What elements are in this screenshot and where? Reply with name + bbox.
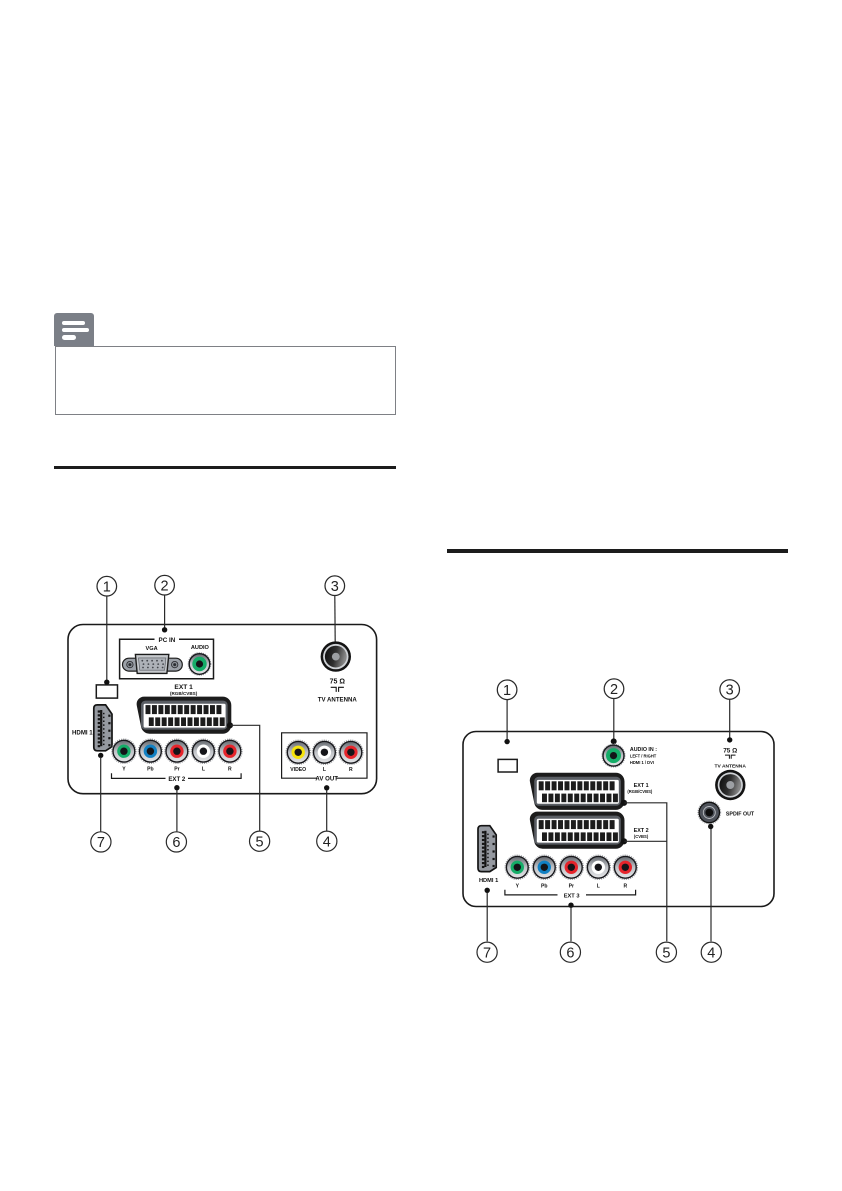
svg-text:2: 2 [610,682,618,698]
svg-text:L: L [202,767,205,773]
svg-text:TV ANTENNA: TV ANTENNA [715,763,747,769]
svg-text:5: 5 [256,834,264,850]
svg-text:3: 3 [726,683,734,699]
svg-text:75 Ω: 75 Ω [330,679,346,686]
svg-text:7: 7 [483,945,491,961]
svg-text:6: 6 [172,835,180,851]
svg-text:5: 5 [662,945,670,961]
svg-text:VIDEO: VIDEO [290,767,306,773]
svg-text:4: 4 [707,945,715,961]
svg-text:(CVBS): (CVBS) [634,834,649,839]
svg-text:AUDIO IN :: AUDIO IN : [630,747,657,753]
svg-text:L: L [323,767,326,773]
svg-text:HDMI 1: HDMI 1 [479,878,498,884]
svg-text:L: L [597,883,600,889]
svg-text:R: R [228,767,232,773]
svg-text:Y: Y [516,883,520,889]
svg-text:SPDIF OUT: SPDIF OUT [726,811,755,817]
svg-text:(RGB/CVBS): (RGB/CVBS) [627,789,652,794]
svg-text:LEFT / RIGHT: LEFT / RIGHT [630,754,657,759]
svg-text:R: R [349,767,353,773]
svg-text:HDMI 1 / DVI: HDMI 1 / DVI [630,760,654,765]
svg-text:(RGB/CVBS): (RGB/CVBS) [170,691,198,696]
svg-text:4: 4 [323,834,331,850]
svg-text:1: 1 [103,579,111,595]
svg-text:TV ANTENNA: TV ANTENNA [318,696,358,703]
svg-text:R: R [623,883,627,889]
svg-text:EXT 1: EXT 1 [634,783,649,789]
svg-text:HDMI 1: HDMI 1 [72,730,93,737]
svg-text:Pr: Pr [569,883,574,889]
svg-text:Pb: Pb [541,883,548,889]
svg-text:Pr: Pr [174,767,179,773]
svg-text:2: 2 [161,578,169,594]
svg-text:Y: Y [122,767,126,773]
svg-text:1: 1 [503,683,511,699]
svg-text:VGA: VGA [146,646,158,652]
svg-text:EXT 2: EXT 2 [634,828,649,834]
svg-text:Pb: Pb [147,767,154,773]
svg-text:7: 7 [97,835,105,851]
svg-text:PC IN: PC IN [159,637,176,644]
svg-text:AV OUT: AV OUT [315,776,338,783]
svg-text:75 Ω: 75 Ω [723,748,737,755]
svg-text:AUDIO: AUDIO [191,645,210,651]
svg-text:6: 6 [566,945,574,961]
svg-text:EXT 2: EXT 2 [168,776,186,783]
svg-text:EXT 3: EXT 3 [564,893,580,899]
svg-text:3: 3 [331,579,339,595]
